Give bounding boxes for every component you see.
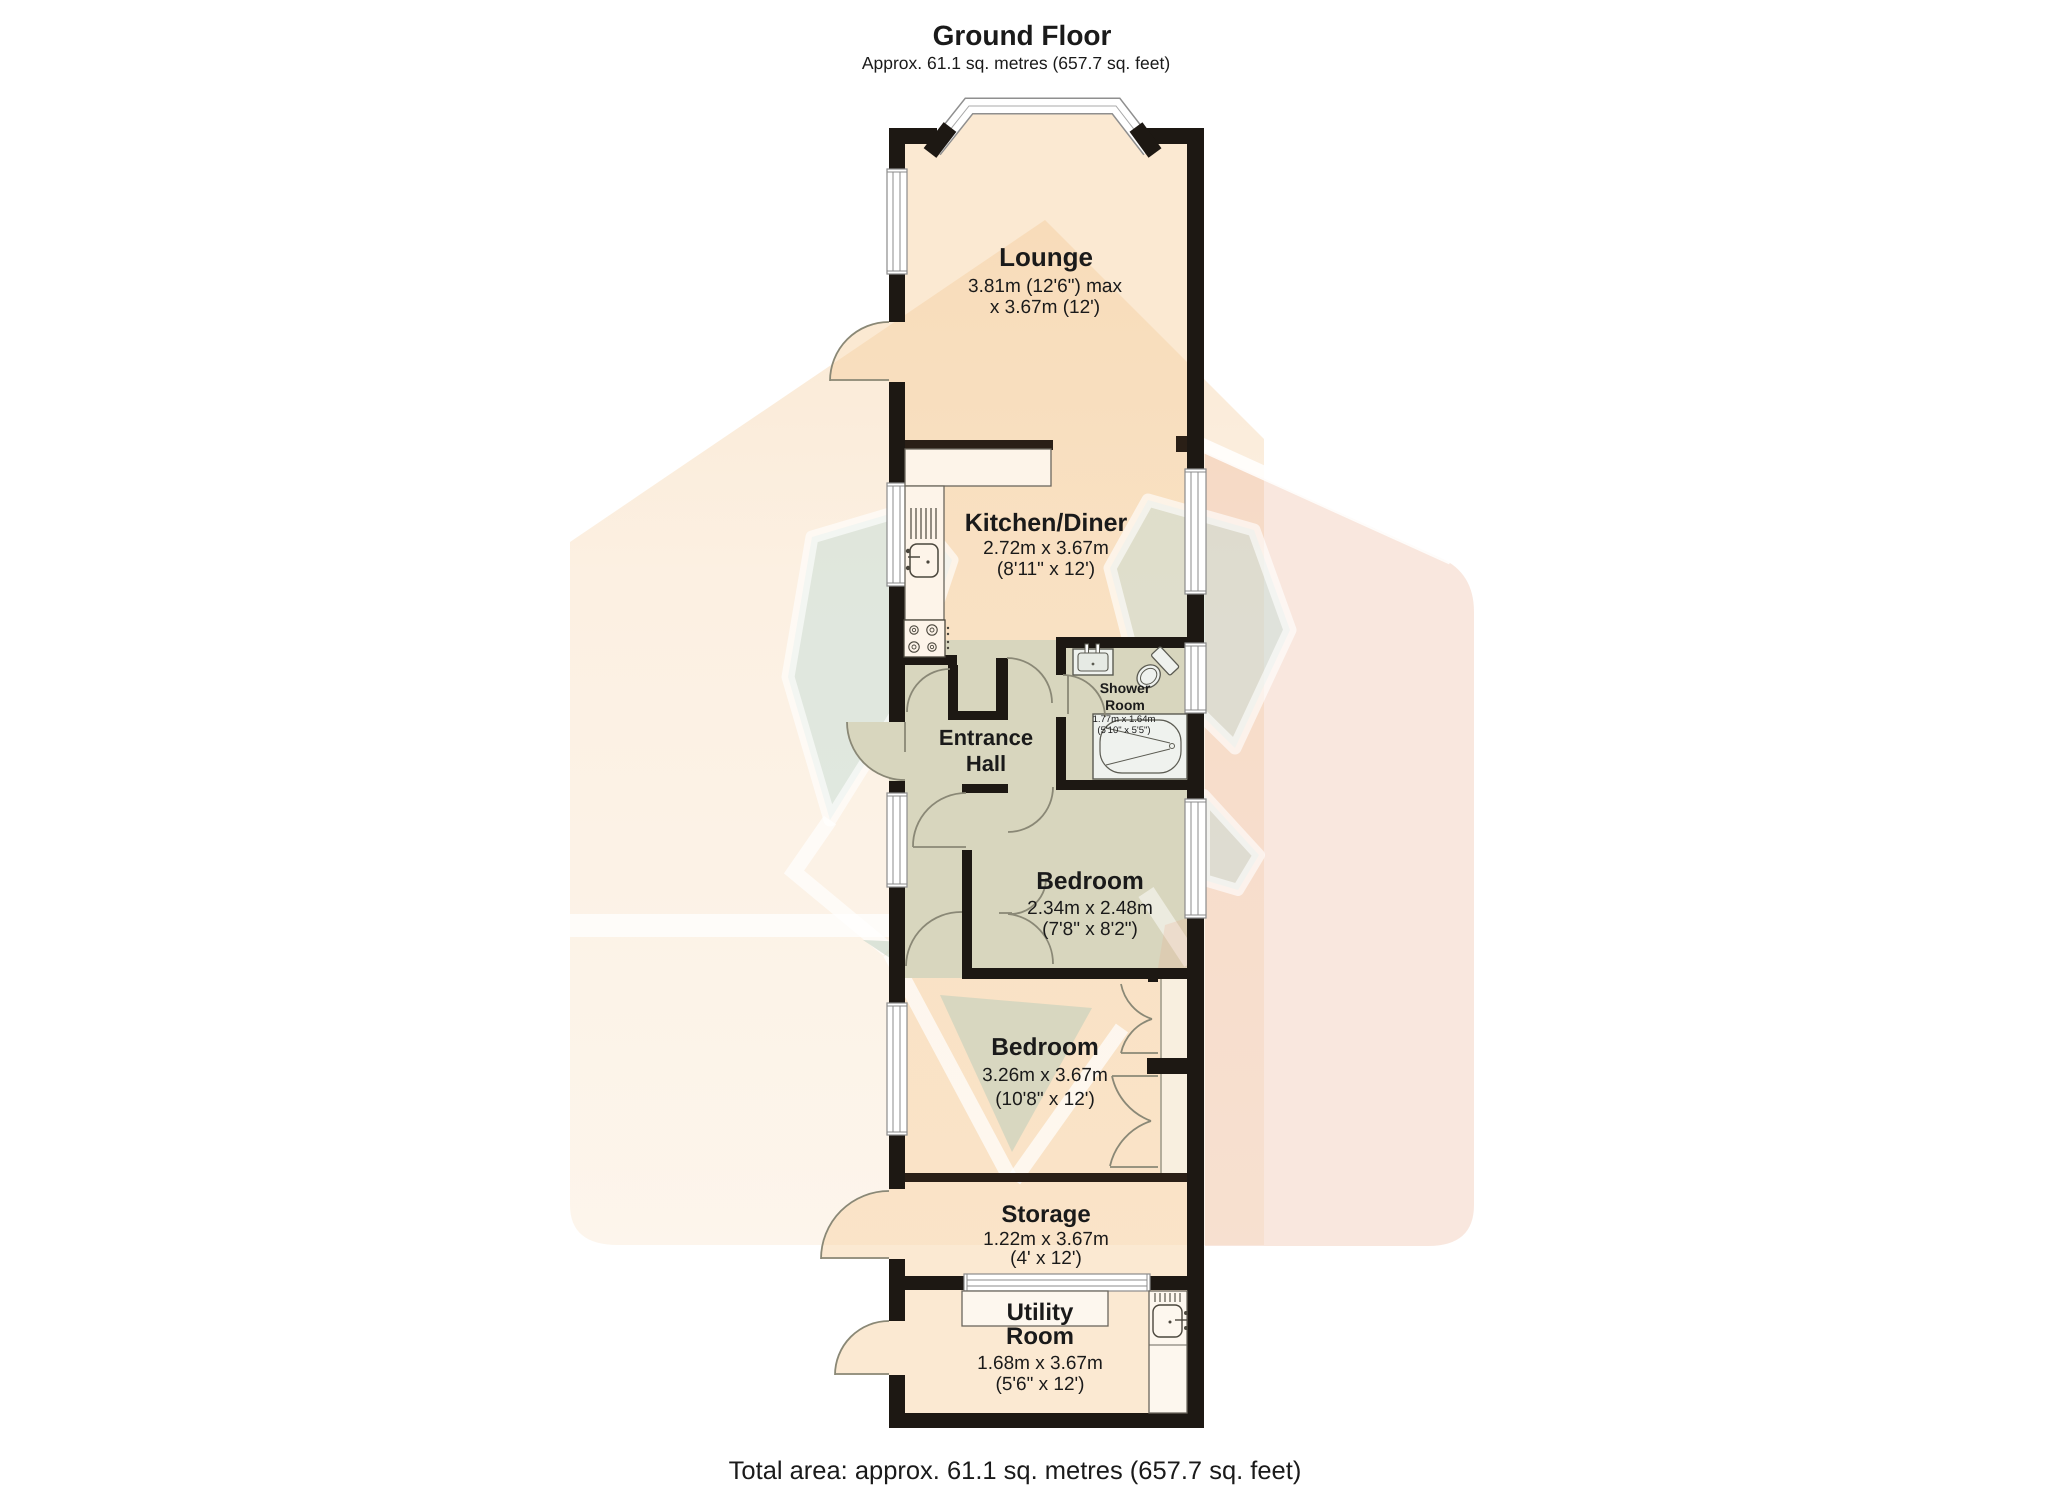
svg-text:(5'6" x 12'): (5'6" x 12') xyxy=(996,1374,1085,1395)
svg-text:Entrance: Entrance xyxy=(939,725,1033,750)
svg-text:Bedroom: Bedroom xyxy=(1036,868,1144,895)
svg-text:(4' x 12'): (4' x 12') xyxy=(1010,1248,1082,1269)
svg-text:Ground Floor: Ground Floor xyxy=(933,20,1112,51)
svg-text:Hall: Hall xyxy=(966,751,1006,776)
svg-text:Approx. 61.1 sq. metres (657.7: Approx. 61.1 sq. metres (657.7 sq. feet) xyxy=(862,53,1170,73)
svg-text:Total area: approx. 61.1 sq. m: Total area: approx. 61.1 sq. metres (657… xyxy=(729,1457,1302,1485)
svg-text:2.72m x 3.67m: 2.72m x 3.67m xyxy=(983,538,1109,559)
svg-text:Room: Room xyxy=(1006,1323,1074,1350)
svg-text:1.22m x 3.67m: 1.22m x 3.67m xyxy=(983,1229,1109,1250)
svg-text:1.77m x 1.64m: 1.77m x 1.64m xyxy=(1093,714,1156,725)
svg-text:(8'11" x 12'): (8'11" x 12') xyxy=(997,559,1095,580)
svg-text:(10'8" x 12'): (10'8" x 12') xyxy=(995,1089,1095,1110)
svg-text:Bedroom: Bedroom xyxy=(991,1034,1099,1061)
svg-text:x 3.67m (12'): x 3.67m (12') xyxy=(990,297,1100,318)
svg-text:(7'8" x 8'2"): (7'8" x 8'2") xyxy=(1042,919,1138,940)
svg-text:3.81m (12'6") max: 3.81m (12'6") max xyxy=(968,276,1122,297)
svg-text:(5'10" x 5'5"): (5'10" x 5'5") xyxy=(1097,725,1150,736)
svg-text:1.68m x 3.67m: 1.68m x 3.67m xyxy=(977,1353,1103,1374)
svg-text:Room: Room xyxy=(1105,697,1145,713)
svg-text:3.26m x 3.67m: 3.26m x 3.67m xyxy=(982,1065,1108,1086)
svg-text:Storage: Storage xyxy=(1001,1201,1090,1228)
svg-text:2.34m x 2.48m: 2.34m x 2.48m xyxy=(1027,898,1153,919)
svg-text:Utility: Utility xyxy=(1007,1299,1074,1326)
svg-text:Lounge: Lounge xyxy=(999,242,1093,272)
svg-text:Shower: Shower xyxy=(1100,680,1151,696)
svg-text:Kitchen/Diner: Kitchen/Diner xyxy=(965,509,1128,537)
